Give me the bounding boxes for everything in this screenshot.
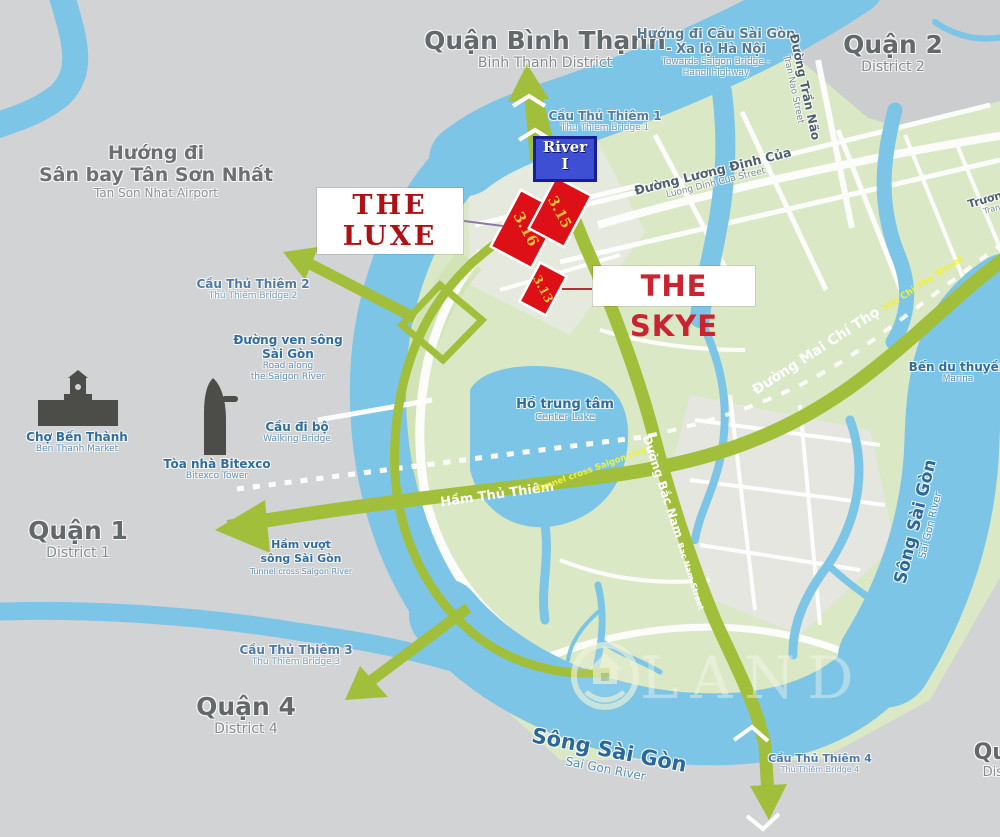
oland-watermark: LAND [574,644,866,712]
direction-label-airport: Hướng đi Sân bay Tân Sơn Nhất Tan Son Nh… [39,142,273,200]
bridge-label-thu-thiem-3: Cầu Thủ Thiêm 3 Thủ Thiêm Bridge 3 [239,643,352,667]
region-label-district-2: Quận 2 District 2 [843,30,943,75]
direction-label-saigon-bridge: Hướng đi Cầu Sài Gòn - Xa lộ Hà Nội Towa… [637,27,796,79]
region-label-district-4: Quận 4 District 4 [196,692,296,737]
the-luxe-callout: THE LUXE [317,188,463,254]
bridge-label-thu-thiem-2: Cầu Thủ Thiêm 2 Thủ Thiêm Bridge 2 [196,277,309,301]
the-skye-callout: THE SKYE [593,266,755,306]
region-label-district-edge: Quận District [951,740,1000,780]
bridge-label-thu-thiem-1: Cầu Thủ Thiêm 1 Thu Thiem Bridge 1 [548,109,661,133]
river-block-badge: River I [533,136,597,182]
region-label-district-1: Quận 1 District 1 [28,516,128,561]
water-label-center-lake: Hồ trung tâm Center Lake [516,398,614,423]
water-label-tunnel: Hầm vượt sông Sài Gòn Tunnel cross Saigo… [250,538,352,577]
road-label-ven-song: Đường ven sông Sài Gòn Road along the Sa… [233,333,342,383]
landmark-label-ben-thanh: Chợ Bến Thành Ben Thanh Market [26,430,128,455]
map-canvas: LAND 3.16 3.15 3.13 [0,0,1000,837]
map-page: { "map": { "regions": { "binh_thanh": {"… [0,0,1000,837]
region-label-binh-thanh: Quận Bình Thạnh Binh Thanh District [424,26,666,71]
water-label-marina: Bến du thuyền Marina [909,360,1000,385]
bridge-label-walking: Cầu đi bộ Walking Bridge [263,420,331,445]
landmark-label-bitexco: Tòa nhà Bitexco Bitexco Tower [163,457,270,482]
bridge-label-thu-thiem-4: Cầu Thủ Thiêm 4 Thủ Thiêm Bridge 4 [768,752,872,774]
watermark-text: LAND [640,644,866,712]
